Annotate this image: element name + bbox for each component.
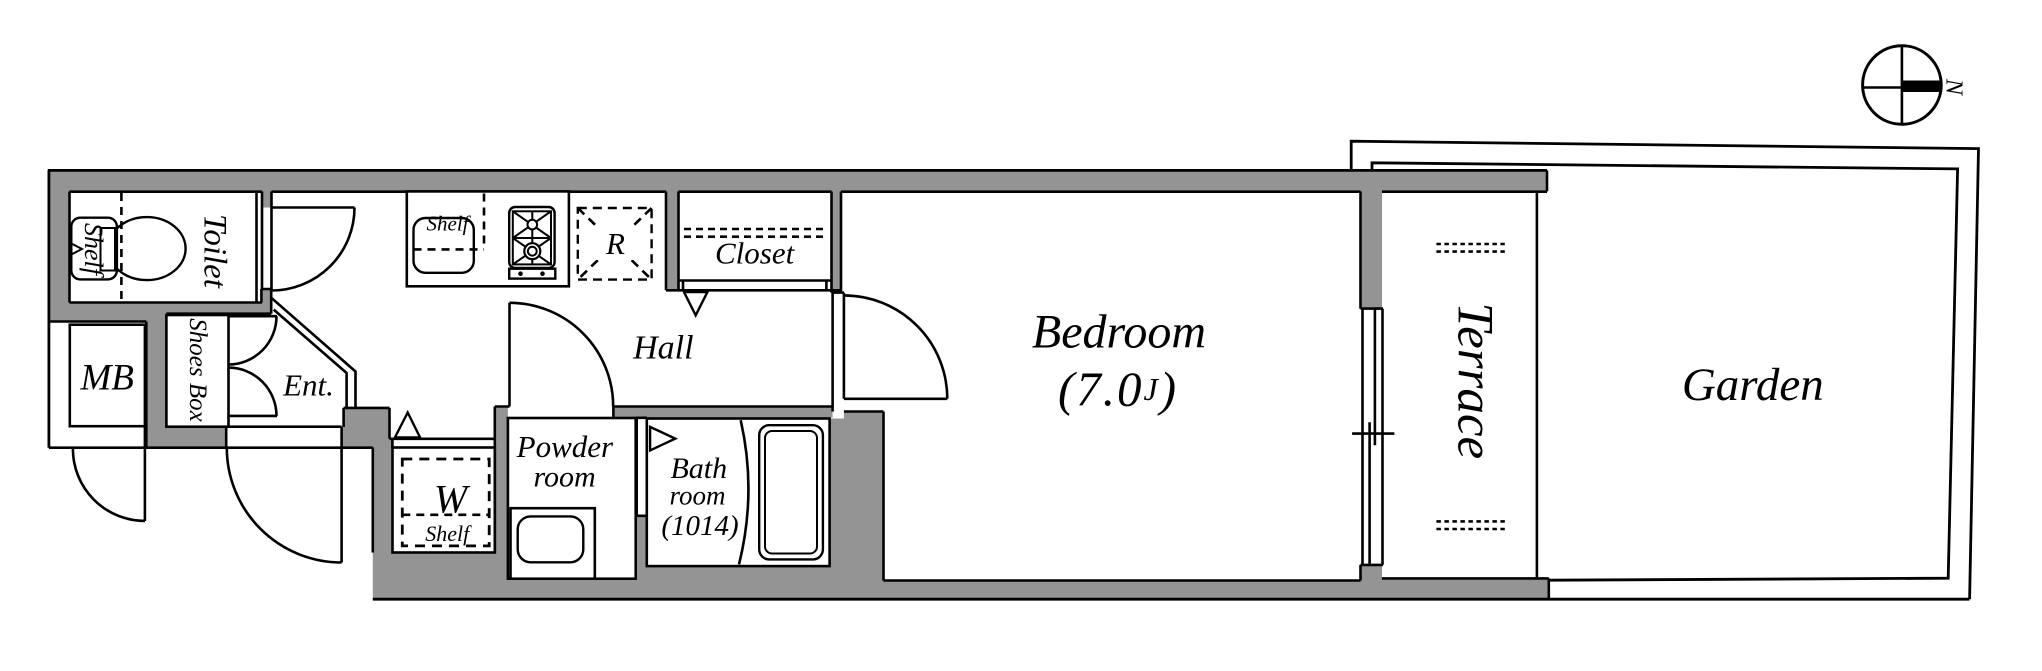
svg-text:Shelf: Shelf [425, 521, 472, 546]
svg-text:Shelf: Shelf [79, 223, 108, 279]
svg-text:Closet: Closet [715, 236, 796, 271]
svg-text:MB: MB [79, 358, 133, 399]
svg-text:Hall: Hall [632, 330, 693, 367]
svg-text:N: N [1941, 78, 1967, 97]
svg-text:Bedroom: Bedroom [1032, 306, 1206, 359]
svg-text:room: room [533, 461, 595, 494]
svg-text:Ent.: Ent. [282, 368, 334, 403]
svg-text:(7.0J): (7.0J) [1058, 362, 1178, 417]
svg-text:Toilet: Toilet [197, 214, 233, 289]
svg-text:Terrace: Terrace [1446, 302, 1502, 459]
svg-text:W: W [434, 477, 471, 522]
svg-text:room: room [669, 481, 725, 511]
svg-text:(1014): (1014) [661, 510, 738, 542]
svg-text:Shoes Box: Shoes Box [184, 318, 211, 421]
svg-text:Shelf: Shelf [427, 212, 472, 236]
svg-text:Powder: Powder [516, 429, 614, 464]
svg-text:Garden: Garden [1682, 359, 1824, 411]
svg-text:R: R [605, 226, 625, 261]
